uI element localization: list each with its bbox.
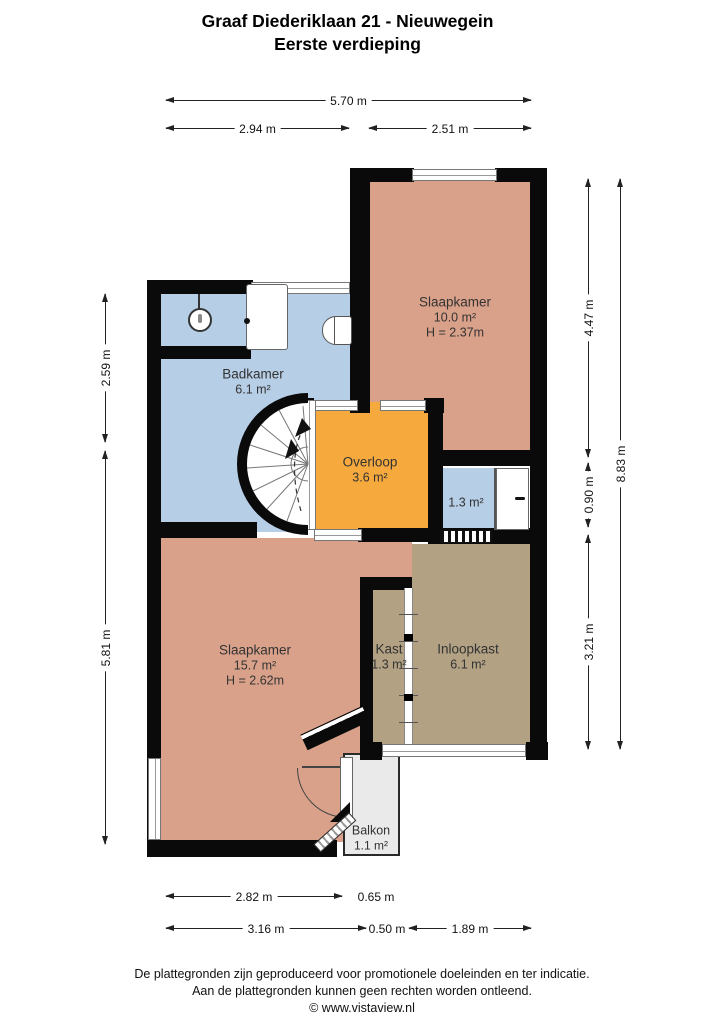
dimension-bottom2-middle: 0.50 m [369, 922, 406, 936]
disclaimer-line1: De plattegronden zijn geproduceerd voor … [0, 966, 724, 983]
opening-bedroom1-overloop [380, 400, 426, 411]
copyright: © www.vistaview.nl [0, 1000, 724, 1017]
wall-bedroom1-bottom [428, 450, 546, 466]
room-label-balkon: Balkon 1.1 m² [352, 824, 390, 853]
shower-cabinet [246, 284, 288, 350]
room-label-kast: Kast 1.3 m² [371, 642, 406, 673]
spiral-stairs-icon [233, 389, 325, 541]
dimension-top-right: 2.51 m [368, 122, 532, 135]
cabinet-knob-icon [244, 318, 250, 324]
dimension-bottom1-left: 2.82 m [165, 890, 343, 903]
page-title: Graaf Diederiklaan 21 - Nieuwegein Eerst… [0, 10, 695, 56]
room-label-overloop: Overloop 3.6 m² [343, 455, 398, 486]
disclaimer-line2: Aan de plattegronden kunnen geen rechten… [0, 983, 724, 1000]
page-title-floor: Eerste verdieping [0, 33, 695, 56]
wall-bedroom1-top-right [495, 168, 535, 182]
wall-shower [147, 346, 251, 359]
wall-bath-bedroom1 [350, 168, 370, 413]
room-label-slaapkamer-2: Slaapkamer 15.7 m² H = 2.62m [219, 642, 291, 687]
disclaimer: De plattegronden zijn geproduceerd voor … [0, 966, 724, 1017]
wall-inloopkast-bottom-left [362, 742, 382, 760]
dimension-top-total: 5.70 m [165, 94, 532, 107]
window-inloopkast-bottom [382, 744, 526, 757]
dimension-bottom2-left: 3.16 m [165, 922, 367, 935]
dimension-top-left: 2.94 m [165, 122, 350, 135]
window-bedroom1-top [412, 169, 497, 181]
room-floor-slaapkamer-2-notch [340, 538, 412, 580]
room-label-berging: 1.3 m² [448, 496, 483, 511]
sliding-door-handle [404, 634, 413, 641]
room-floor-slaapkamer-1 [368, 180, 530, 402]
radiator-grille [440, 530, 492, 543]
page-title-address: Graaf Diederiklaan 21 - Nieuwegein [0, 10, 695, 33]
sliding-door-handle [404, 694, 413, 701]
toilet-icon [322, 316, 352, 345]
wall-overloop-bottom [358, 528, 428, 542]
dimension-left-lower: 5.81 m [99, 450, 112, 845]
floor-plan-sheet: Graaf Diederiklaan 21 - Nieuwegein Eerst… [0, 0, 724, 1024]
shower-head-icon [188, 308, 212, 332]
meter-icon [515, 497, 525, 500]
wall-inloopkast-bottom-right [526, 742, 548, 760]
dimension-right-lower: 3.21 m [582, 534, 595, 750]
dimension-right-total: 8.83 m [614, 178, 627, 750]
dimension-right-upper: 4.47 m [582, 178, 595, 458]
room-label-badkamer: Badkamer 6.1 m² [222, 367, 284, 398]
wall-bathroom-top [147, 280, 253, 294]
wall-bottom [147, 840, 337, 857]
wall-bedroom1-top-left [358, 168, 414, 182]
dimension-bottom1-right: 0.65 m [358, 890, 395, 904]
dimension-left-upper: 2.59 m [99, 293, 112, 443]
dimension-right-middle: 0.90 m [582, 462, 595, 528]
room-label-slaapkamer-1: Slaapkamer 10.0 m² H = 2.37m [419, 294, 491, 339]
dimension-bottom2-right: 1.89 m [408, 922, 532, 935]
window-bedroom2-left [148, 758, 161, 840]
room-label-inloopkast: Inloopkast 6.1 m² [437, 642, 499, 673]
